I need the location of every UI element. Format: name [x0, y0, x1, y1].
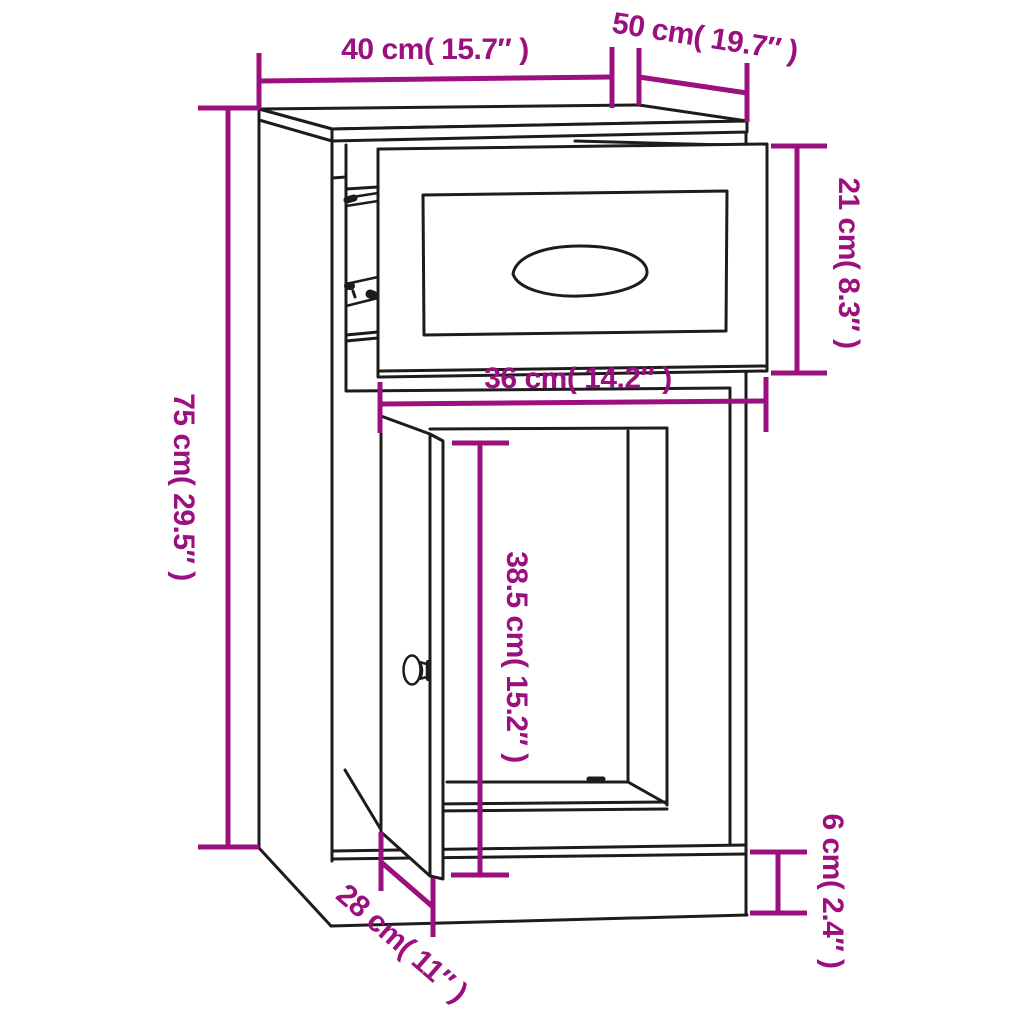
inner-width-label: 36 cm( 14.2″ ) — [484, 362, 671, 395]
door — [381, 416, 443, 879]
cabinet-top-panel — [259, 105, 747, 141]
overall-width-label: 40 cm( 15.7″ ) — [341, 33, 528, 66]
furniture-dimension-diagram: 40 cm( 15.7″ ) 50 cm( 19.7″ ) 21 cm( 8.3… — [0, 0, 1024, 1024]
drawer — [378, 144, 767, 377]
door-edge — [430, 434, 443, 879]
cabinet-line-art — [259, 105, 767, 926]
dimension-overall-height — [198, 108, 259, 847]
drawer-height-label: 21 cm( 8.3″ ) — [832, 177, 865, 348]
door-height-label: 38.5 cm( 15.2″ ) — [500, 551, 533, 763]
drawer-handle — [513, 246, 647, 296]
drawer-slide-rails — [346, 193, 378, 306]
base-height-label: 6 cm( 2.4″ ) — [816, 813, 849, 968]
overall-height-label: 75 cm( 29.5″ ) — [167, 393, 200, 580]
dimension-base-height — [750, 852, 807, 913]
dimension-drawer-height — [771, 146, 827, 373]
door-face — [381, 416, 430, 876]
base-depth-label: 28 cm( 11″ ) — [330, 878, 474, 1009]
